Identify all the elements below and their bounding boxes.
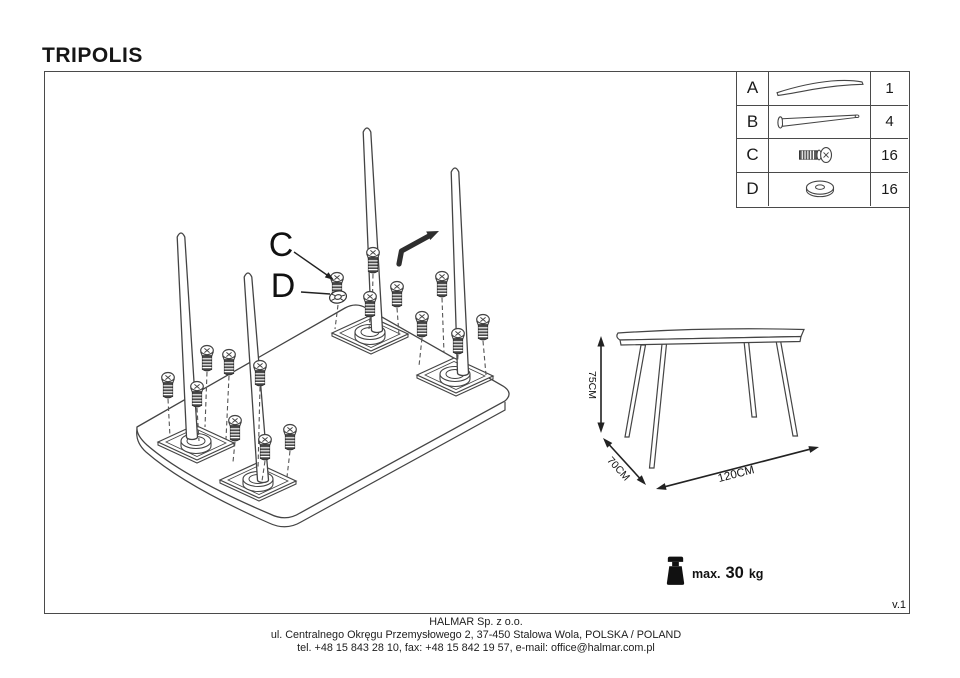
part-row-c-qty: 16 [871, 139, 908, 173]
screw [201, 346, 214, 372]
part-row-b-icon-cell [769, 106, 871, 140]
height-dimension: 75CM [586, 336, 605, 433]
weight-limit: max. 30 kg [664, 555, 763, 586]
screw [364, 292, 377, 318]
assembly-instruction-sheet: TRIPOLIS v.1 [0, 0, 960, 678]
part-row-b-qty: 4 [871, 106, 908, 140]
screw [477, 315, 490, 341]
part-row-c-letter: C [737, 139, 769, 173]
table-leg [744, 341, 757, 417]
weight-icon [664, 555, 687, 586]
weight-limit-prefix: max. [692, 567, 721, 586]
footer: HALMAR Sp. z o.o. ul. Centralnego Okręgu… [0, 616, 952, 656]
allen-key-icon [399, 231, 439, 264]
callout-d: D [271, 267, 330, 305]
part-row-d-letter: D [737, 173, 769, 207]
part-row-c-icon-cell [769, 139, 871, 173]
part-row-d-icon-cell [769, 173, 871, 207]
screw [391, 282, 404, 308]
screw [223, 350, 236, 376]
part-row-d-qty: 16 [871, 173, 908, 207]
screw [284, 425, 297, 451]
part-row-a-icon-cell [769, 72, 871, 106]
screw [436, 272, 449, 298]
part-row-a-qty: 1 [871, 72, 908, 106]
part-row-a-letter: A [737, 72, 769, 106]
screw [229, 416, 242, 442]
table-leg-icon [771, 108, 869, 136]
table-leg [625, 345, 646, 437]
depth-label: 70CM [604, 455, 632, 484]
part-row-b-letter: B [737, 106, 769, 140]
parts-table: A 1 B 4 C 16 [736, 71, 910, 208]
table-leg [650, 344, 667, 468]
screw [191, 382, 204, 408]
table-leg [776, 341, 798, 437]
assembled-table [617, 329, 804, 468]
washer [328, 289, 347, 304]
screw [259, 435, 272, 461]
weight-limit-value: 30 [726, 564, 744, 586]
width-dimension: 120CM [656, 446, 819, 490]
page-title: TRIPOLIS [42, 44, 143, 68]
screw [254, 361, 267, 387]
dimension-drawing: 75CM 70CM 120CM [580, 320, 870, 505]
screw [162, 373, 175, 399]
tabletop-panel-icon [771, 74, 869, 102]
footer-contact: tel. +48 15 843 28 10, fax: +48 15 842 1… [0, 642, 952, 655]
weight-limit-unit: kg [749, 567, 764, 586]
screw [452, 329, 465, 355]
callout-c-label: C [269, 226, 294, 264]
callout-d-label: D [271, 267, 296, 305]
width-label: 120CM [717, 464, 756, 485]
version-label: v.1 [892, 599, 906, 611]
footer-company: HALMAR Sp. z o.o. [0, 616, 952, 629]
depth-dimension: 70CM [603, 438, 646, 485]
exploded-view-diagram: C D [90, 85, 560, 555]
screw [367, 248, 380, 274]
footer-address: ul. Centralnego Okręgu Przemysłowego 2, … [0, 629, 952, 642]
height-label: 75CM [586, 371, 598, 399]
screw-icon [792, 141, 848, 169]
washer-icon [798, 175, 842, 203]
screw [416, 312, 429, 338]
